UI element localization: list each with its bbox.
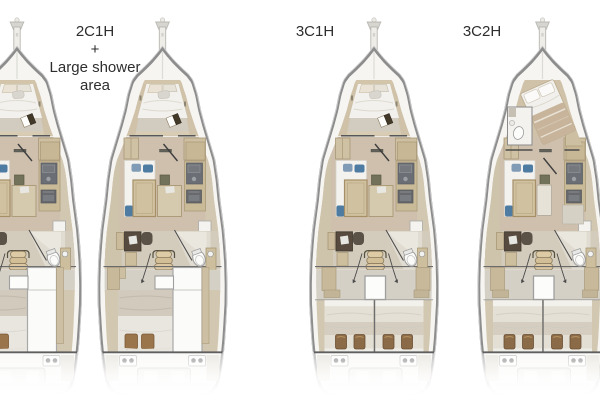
svg-text:3C1H: 3C1H bbox=[296, 23, 334, 40]
svg-text:Large shower: Large shower bbox=[50, 59, 141, 76]
svg-text:3C2H: 3C2H bbox=[463, 23, 501, 40]
svg-text:+: + bbox=[91, 41, 100, 58]
svg-text:area: area bbox=[80, 77, 111, 94]
svg-text:2C1H: 2C1H bbox=[76, 23, 114, 40]
